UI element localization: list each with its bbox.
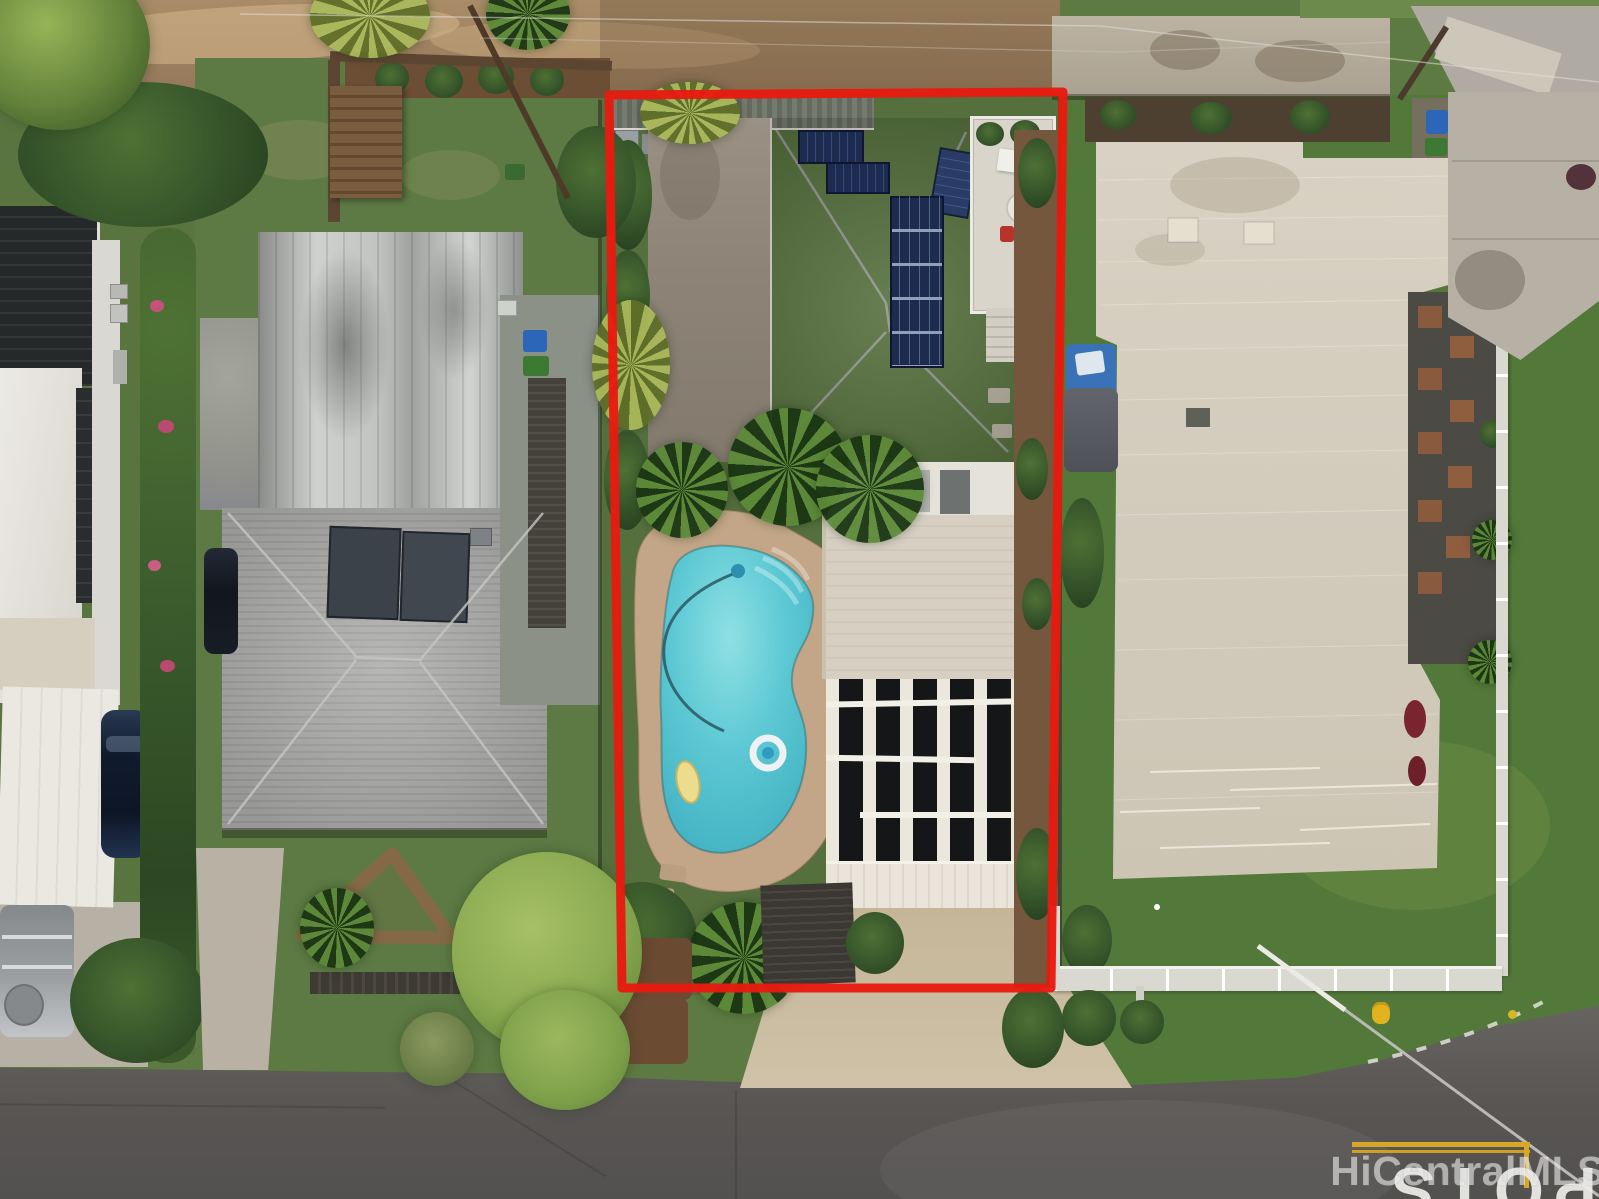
yellow-center-line [1352, 1142, 1530, 1147]
fire-hydrant [1372, 1002, 1390, 1024]
guy-wire-sheath [1258, 946, 1345, 1010]
aerial-photo: S T O P HiCentralMLS [0, 0, 1599, 1199]
overlay-lines [0, 0, 1599, 1199]
curb-dash-markings [1368, 1001, 1545, 1062]
power-line [480, 38, 1390, 52]
subject-property-outline [609, 92, 1063, 988]
mls-watermark: HiCentralMLS [1330, 1148, 1599, 1195]
yellow-marker-dot [1508, 1010, 1517, 1019]
